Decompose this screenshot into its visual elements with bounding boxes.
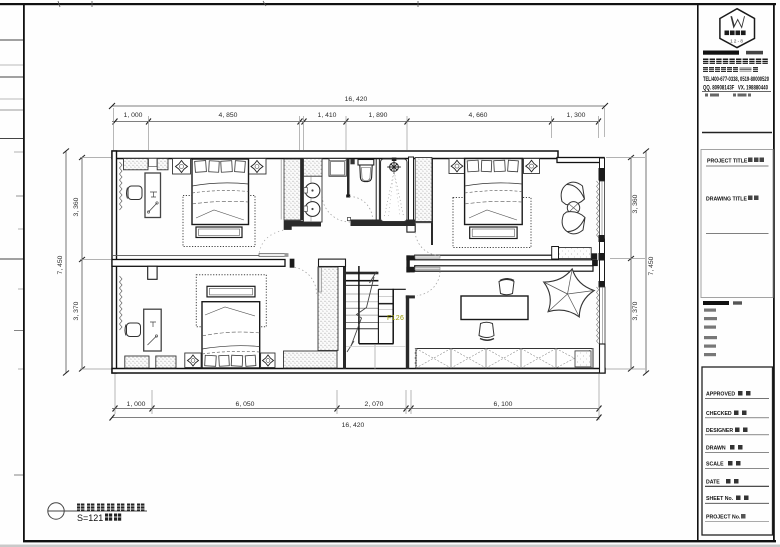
svg-text:QQ. 80908143F VX. 198880440: QQ. 80908143F VX. 198880440 xyxy=(703,85,768,92)
svg-text:6, 100: 6, 100 xyxy=(494,401,513,408)
svg-text:1, 300: 1, 300 xyxy=(567,112,586,119)
svg-text:1 2 - 8: 1 2 - 8 xyxy=(730,39,743,44)
svg-text:DRAWING TITLE: DRAWING TITLE xyxy=(706,197,747,203)
svg-text:7, 450: 7, 450 xyxy=(648,256,655,275)
svg-text:3, 360: 3, 360 xyxy=(73,197,80,216)
svg-text:PROJECT TITLE: PROJECT TITLE xyxy=(707,159,748,165)
svg-text:3, 360: 3, 360 xyxy=(632,194,639,213)
svg-text:1, 000: 1, 000 xyxy=(124,112,143,119)
svg-text:1, 410: 1, 410 xyxy=(318,112,337,119)
svg-text:TEL/400-677-0338, 0519-8000052: TEL/400-677-0338, 0519-80000520 xyxy=(703,76,769,83)
svg-text:APPROVED: APPROVED xyxy=(706,392,735,398)
svg-text:F126: F126 xyxy=(387,315,404,322)
svg-text:4, 850: 4, 850 xyxy=(219,112,238,119)
svg-text:1, 890: 1, 890 xyxy=(369,112,388,119)
svg-text:16, 420: 16, 420 xyxy=(345,96,368,103)
svg-text:DRAWN: DRAWN xyxy=(706,446,726,452)
svg-text:SCALE: SCALE xyxy=(706,462,724,468)
svg-text:DATE: DATE xyxy=(706,480,720,486)
svg-text:16, 420: 16, 420 xyxy=(342,422,365,429)
svg-text:CHECKED: CHECKED xyxy=(706,411,732,417)
svg-text:S=121: S=121 xyxy=(77,513,103,523)
svg-text:3, 370: 3, 370 xyxy=(632,301,639,320)
svg-text:4, 660: 4, 660 xyxy=(469,112,488,119)
svg-text:2, 070: 2, 070 xyxy=(365,401,384,408)
svg-text:1, 000: 1, 000 xyxy=(127,401,146,408)
svg-text:PROJECT No.: PROJECT No. xyxy=(706,515,741,521)
svg-text:6, 050: 6, 050 xyxy=(236,401,255,408)
svg-text:3, 370: 3, 370 xyxy=(73,301,80,320)
svg-text:7, 450: 7, 450 xyxy=(57,255,64,274)
svg-text:DESIGNER: DESIGNER xyxy=(706,428,733,434)
svg-text:SHEET No.: SHEET No. xyxy=(706,496,734,502)
